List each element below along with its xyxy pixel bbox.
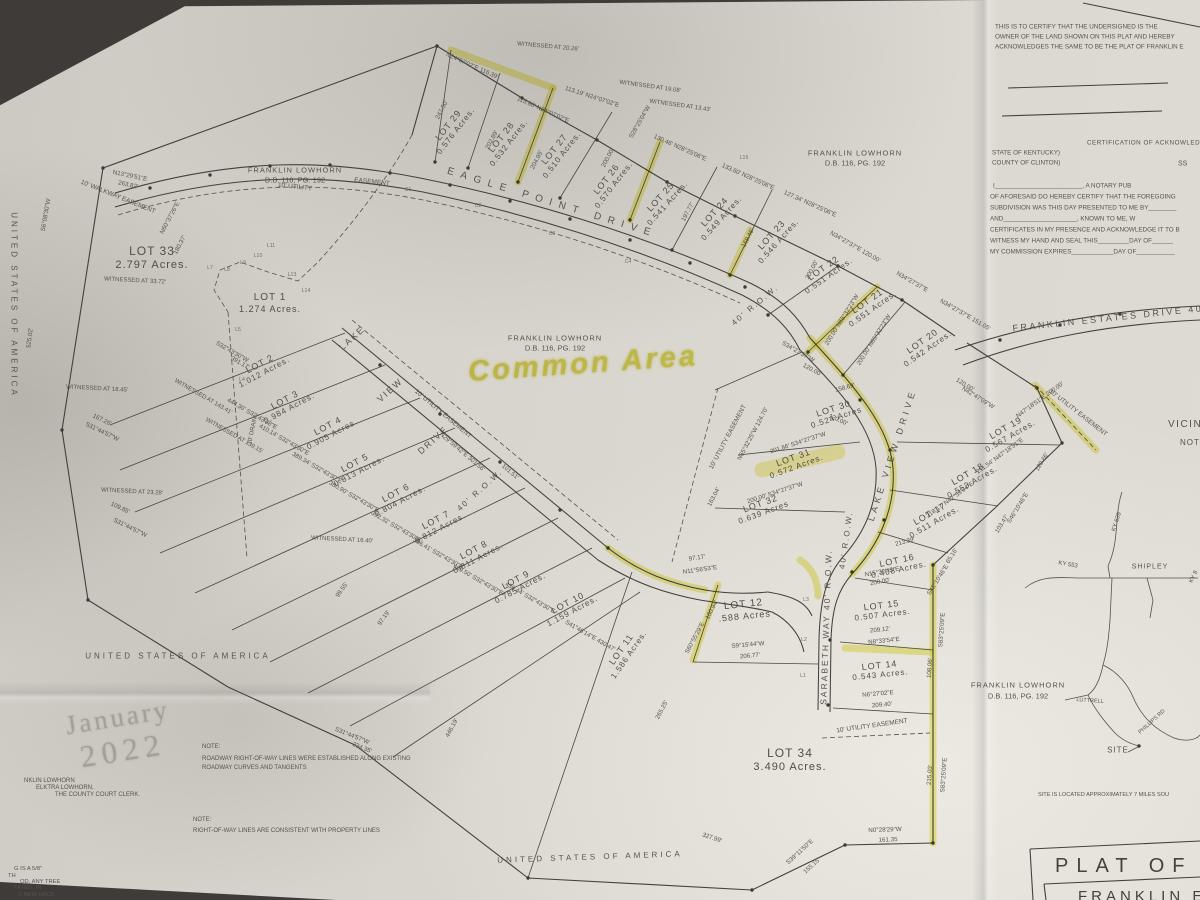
map-label: 206.77' <box>740 652 761 661</box>
map-label: S41°46'14"E 430.47' <box>564 619 617 653</box>
map-label: FRANKLIN LOWHORN <box>971 681 1065 690</box>
map-label: N42°47'09"W <box>961 385 996 410</box>
map-label: S83°25'09"E <box>939 757 948 792</box>
map-label: 446.19' <box>444 717 460 738</box>
map-label: C3 <box>549 231 556 237</box>
map-label: MY COMMISSION EXPIRES____________DAY OF_… <box>990 249 1175 256</box>
lot-acreage: 2.797 Acres. <box>115 259 188 272</box>
map-label: WITNESSED AT 19.08' <box>619 80 681 95</box>
lot-label: LOT 40.905 Acres. <box>300 408 359 452</box>
map-label: 161.35 <box>878 836 897 844</box>
map-label: THE COUNTY COURT CLERK. <box>55 792 140 798</box>
lot-label: LOT 11.274 Acres. <box>239 292 301 314</box>
map-label: L10 <box>254 253 263 259</box>
map-label: S31°44'57"W <box>112 517 148 539</box>
title-block-plat-of: PLAT OF <box>1055 855 1193 878</box>
map-label: KY 639 <box>1111 512 1123 532</box>
map-label: L1 <box>800 673 806 679</box>
map-label: 113.19' N24°07'02"E <box>564 85 620 109</box>
map-label: COUNTY OF CLINTON) <box>992 160 1060 167</box>
lot-label: LOT 300.524 Acres <box>807 395 864 430</box>
map-label: L8 <box>224 267 230 273</box>
map-label: L9 <box>240 260 246 266</box>
map-label: 327.99' <box>701 832 722 845</box>
lot-label: LOT 240.549 Acres. <box>692 187 744 242</box>
map-label: S60°55'29"E <box>684 621 707 655</box>
map-label: L14 <box>302 288 311 294</box>
map-label: 263.82' <box>117 179 138 190</box>
map-label: WITNESSED AT 23.28' <box>101 487 163 496</box>
lot-label: LOT 230.546 Acres. <box>749 210 801 265</box>
lot-label: LOT 70.812 Acres. <box>408 502 467 546</box>
map-label: PHILLIPS RD <box>1137 709 1166 736</box>
map-label: NKLIN LOWHORN <box>24 778 75 784</box>
map-label: L5 <box>235 327 241 333</box>
map-label: FRANKLIN LOWHORN <box>808 149 902 158</box>
map-label: KY 8 <box>1189 570 1200 584</box>
map-label: L7 <box>207 265 213 271</box>
lot-acreage: 1.274 Acres. <box>239 304 301 314</box>
map-label: 10' UTILITY EASEMENT <box>836 718 908 735</box>
map-label: WITNESSED AT 33.72' <box>104 276 166 285</box>
map-label: 120.66' <box>1034 452 1051 473</box>
map-label: 158.69' <box>834 382 855 394</box>
map-label: 155.15' <box>802 857 822 876</box>
map-label: 99.55' <box>334 581 349 599</box>
map-label: 209.40' <box>872 701 893 710</box>
map-label: 40' R.O.W. <box>837 510 854 569</box>
lot-label: LOT 80.811 Acres. <box>447 532 506 575</box>
lot-number: LOT 33 <box>115 245 188 259</box>
lot-acreage: 3.490 Acres. <box>753 761 826 774</box>
lot-number: LOT 1 <box>239 292 301 304</box>
map-label: G IS A 5/8" <box>14 866 42 872</box>
map-label: I_________________________, A NOTARY PUB <box>993 183 1131 190</box>
map-label: N6°27'02"E <box>862 689 894 699</box>
map-label: ROADWAY CURVES AND TANGENTS <box>202 765 307 771</box>
map-label: WITNESSED AT 20.26' <box>517 41 579 52</box>
map-label: WITNESSED AT 13.43' <box>649 99 711 114</box>
map-label: 120.00' <box>802 362 823 378</box>
map-label: WITNESSED AT 16.40' <box>311 535 373 544</box>
map-label: TH <box>8 873 16 879</box>
map-label: ACKNOWLEDGES THE SAME TO BE THE PLAT OF … <box>995 44 1184 51</box>
map-label: LAKE <box>337 324 367 352</box>
map-label: L3 <box>803 597 809 603</box>
map-label: UNITED STATES OF AMERICA <box>10 212 19 398</box>
lot-label: LOT 200.542 Acres. <box>896 321 953 369</box>
map-label: N60°37'26"E <box>159 201 182 235</box>
vicinity-map-subtitle: NOT TO SCALE <box>1180 438 1200 447</box>
map-label: 40' R.O.W. <box>455 467 504 513</box>
map-label: ROADWAY RIGHT-OF-WAY LINES WERE ESTABLIS… <box>202 756 411 762</box>
map-label: UNITED STATES OF AMERICA <box>497 849 683 864</box>
map-label: ELKTRA LOWHORN, <box>36 785 94 791</box>
lot-label: LOT 332.797 Acres. <box>115 245 188 271</box>
map-label: S48°10'46"E <box>926 563 950 596</box>
lot-label: LOT 150.507 Acres. <box>853 597 911 623</box>
vicinity-map-title: VICINITY MAP <box>1168 419 1200 430</box>
map-label: NOTE: <box>193 817 211 823</box>
map-label: OWNER OF THE LAND SHOWN ON THIS PLAT AND… <box>995 34 1175 41</box>
map-label: LAKE VIEW DRIVE <box>866 388 918 523</box>
map-label: S83°25'09"E <box>937 612 946 647</box>
lot-label: LOT 170.511 Acres. <box>903 496 961 541</box>
map-label: WITNESS MY HAND AND SEAL THIS_________DA… <box>990 238 1173 245</box>
map-label: 10' UTILITY EASEMENT <box>1048 388 1109 438</box>
title-block-subdivision-name: FRANKLIN E <box>1078 888 1200 900</box>
map-label: NOTE: <box>202 744 220 750</box>
map-label: S28°25'04"W <box>628 104 652 139</box>
lot-label: LOT 180.553 Acres. <box>941 455 1000 500</box>
map-label: S34°27'37"W <box>780 340 815 364</box>
map-label: C1 <box>405 187 412 193</box>
map-label: S6°08'30"W <box>40 198 53 232</box>
map-label: SITE <box>1107 746 1129 755</box>
lot-label: LOT 30.984 Acres. <box>257 382 316 426</box>
lot-label: LOT 160.408 Acres. <box>868 550 927 581</box>
map-label: CERTIFICATION OF ACKNOWLEDGE <box>1087 140 1200 147</box>
map-label: S46°10'46"E <box>1006 491 1030 524</box>
map-label: CERTIFICATES IN MY PRESENCE AND ACKNOWLE… <box>990 227 1180 234</box>
map-label: 209.12' <box>870 625 891 634</box>
map-label: S NEW HACK <box>18 892 55 898</box>
map-label: SS <box>1178 161 1187 168</box>
map-label: LUTTRELL <box>1076 697 1104 705</box>
map-label: THIS IS TO CERTIFY THAT THE UNDERSIGNED … <box>995 24 1158 31</box>
map-label: 40' R.O.W. <box>730 283 781 327</box>
date-stamp: January 2022 <box>63 694 177 777</box>
plat-photo: January 2022 PLAT OF FRANKLIN E VICINITY… <box>0 0 1200 900</box>
map-label: UNITED STATES OF AMERICA <box>85 652 271 661</box>
map-label: 65.16' <box>945 547 960 565</box>
map-label: 163.04' <box>706 486 722 507</box>
map-label: L15 <box>740 155 749 161</box>
map-label: D.B. 116, PG. 192 <box>825 159 885 168</box>
lot-label: LOT 290.576 Acres. <box>427 100 477 157</box>
map-label: FRANKLIN LOWHORN <box>508 334 602 343</box>
map-label: L13 <box>288 272 297 278</box>
map-label: D.B. 116, PG. 192 <box>988 692 1048 701</box>
lot-label: LOT 111.586 Acres. <box>601 623 649 680</box>
map-label: N11°56'53"E <box>682 564 717 576</box>
lot-label: LOT 343.490 Acres. <box>753 747 826 773</box>
map-label: 103.47' <box>994 514 1011 535</box>
map-label: L11 <box>267 243 275 249</box>
lot-label: LOT 12.588 Acres <box>717 596 772 623</box>
map-label: STATE OF KENTUCKY) <box>992 150 1060 157</box>
map-label: L2 <box>801 637 807 643</box>
vicinity-site-note: SITE IS LOCATED APPROXIMATELY 7 MILES SO… <box>1038 792 1169 798</box>
map-label: SARABETH WAY 40' R.O.W. <box>818 549 833 705</box>
map-label: C4 <box>625 259 632 265</box>
map-label: 97.17' <box>688 553 705 562</box>
map-label: N24°07'02"E 116.39' <box>445 51 499 80</box>
map-label: TATED, IN <box>14 885 41 891</box>
label-layer: January 2022 PLAT OF FRANKLIN E VICINITY… <box>0 0 1200 900</box>
map-label: 525.02' <box>25 328 34 349</box>
map-label: S9°15'44"W <box>731 640 765 650</box>
map-label: 130.46' N28°25'06"E <box>653 133 708 163</box>
lot-number: LOT 34 <box>753 747 826 761</box>
map-label: VIEW <box>375 376 405 404</box>
lot-label: LOT 260.570 Acres. <box>585 154 635 211</box>
lot-label: LOT 140.543 Acres. <box>851 657 909 682</box>
map-label: RIGHT-OF-WAY LINES ARE CONSISTENT WITH P… <box>193 828 380 834</box>
map-label: 108.06' <box>926 658 934 679</box>
map-label: SUBDIVISION WAS THIS DAY PRESENTED TO ME… <box>990 205 1176 212</box>
lot-label: LOT 50.813 Acres. <box>327 445 386 489</box>
map-label: 197.77' <box>680 201 696 222</box>
map-label: N0°28'29"W <box>868 826 902 834</box>
map-label: N29°59'42"E 301.56' <box>438 431 486 473</box>
map-label: C2 <box>475 203 482 209</box>
map-label: 109.85' <box>109 500 130 515</box>
map-label: FRANKLIN ESTATES DRIVE 40' <box>1012 303 1200 333</box>
map-label: 265.25' <box>654 699 670 720</box>
map-label: WITNESSED AT 18.45' <box>66 384 128 393</box>
map-label: N34°27'37"E <box>895 270 929 294</box>
map-label: KY 553 <box>1058 560 1078 569</box>
map-label: 97.19' <box>376 609 391 627</box>
map-label: OF AFORESAID DO HEREBY CERTIFY THAT THE … <box>990 194 1176 201</box>
lot-label: LOT 60.804 Acres. <box>368 475 427 519</box>
map-label: N8°33'54"E <box>868 636 900 646</box>
map-label: FRANKLIN LOWHORN <box>248 166 342 175</box>
map-label: AND_____________________, KNOWN TO ME, W <box>990 216 1135 223</box>
map-label: SHIPLEY <box>1132 564 1169 571</box>
map-label: WITNESSED AT 143.41' <box>173 378 233 416</box>
map-label: 215.03' <box>926 765 934 786</box>
map-label: EASEMENT <box>354 177 390 188</box>
